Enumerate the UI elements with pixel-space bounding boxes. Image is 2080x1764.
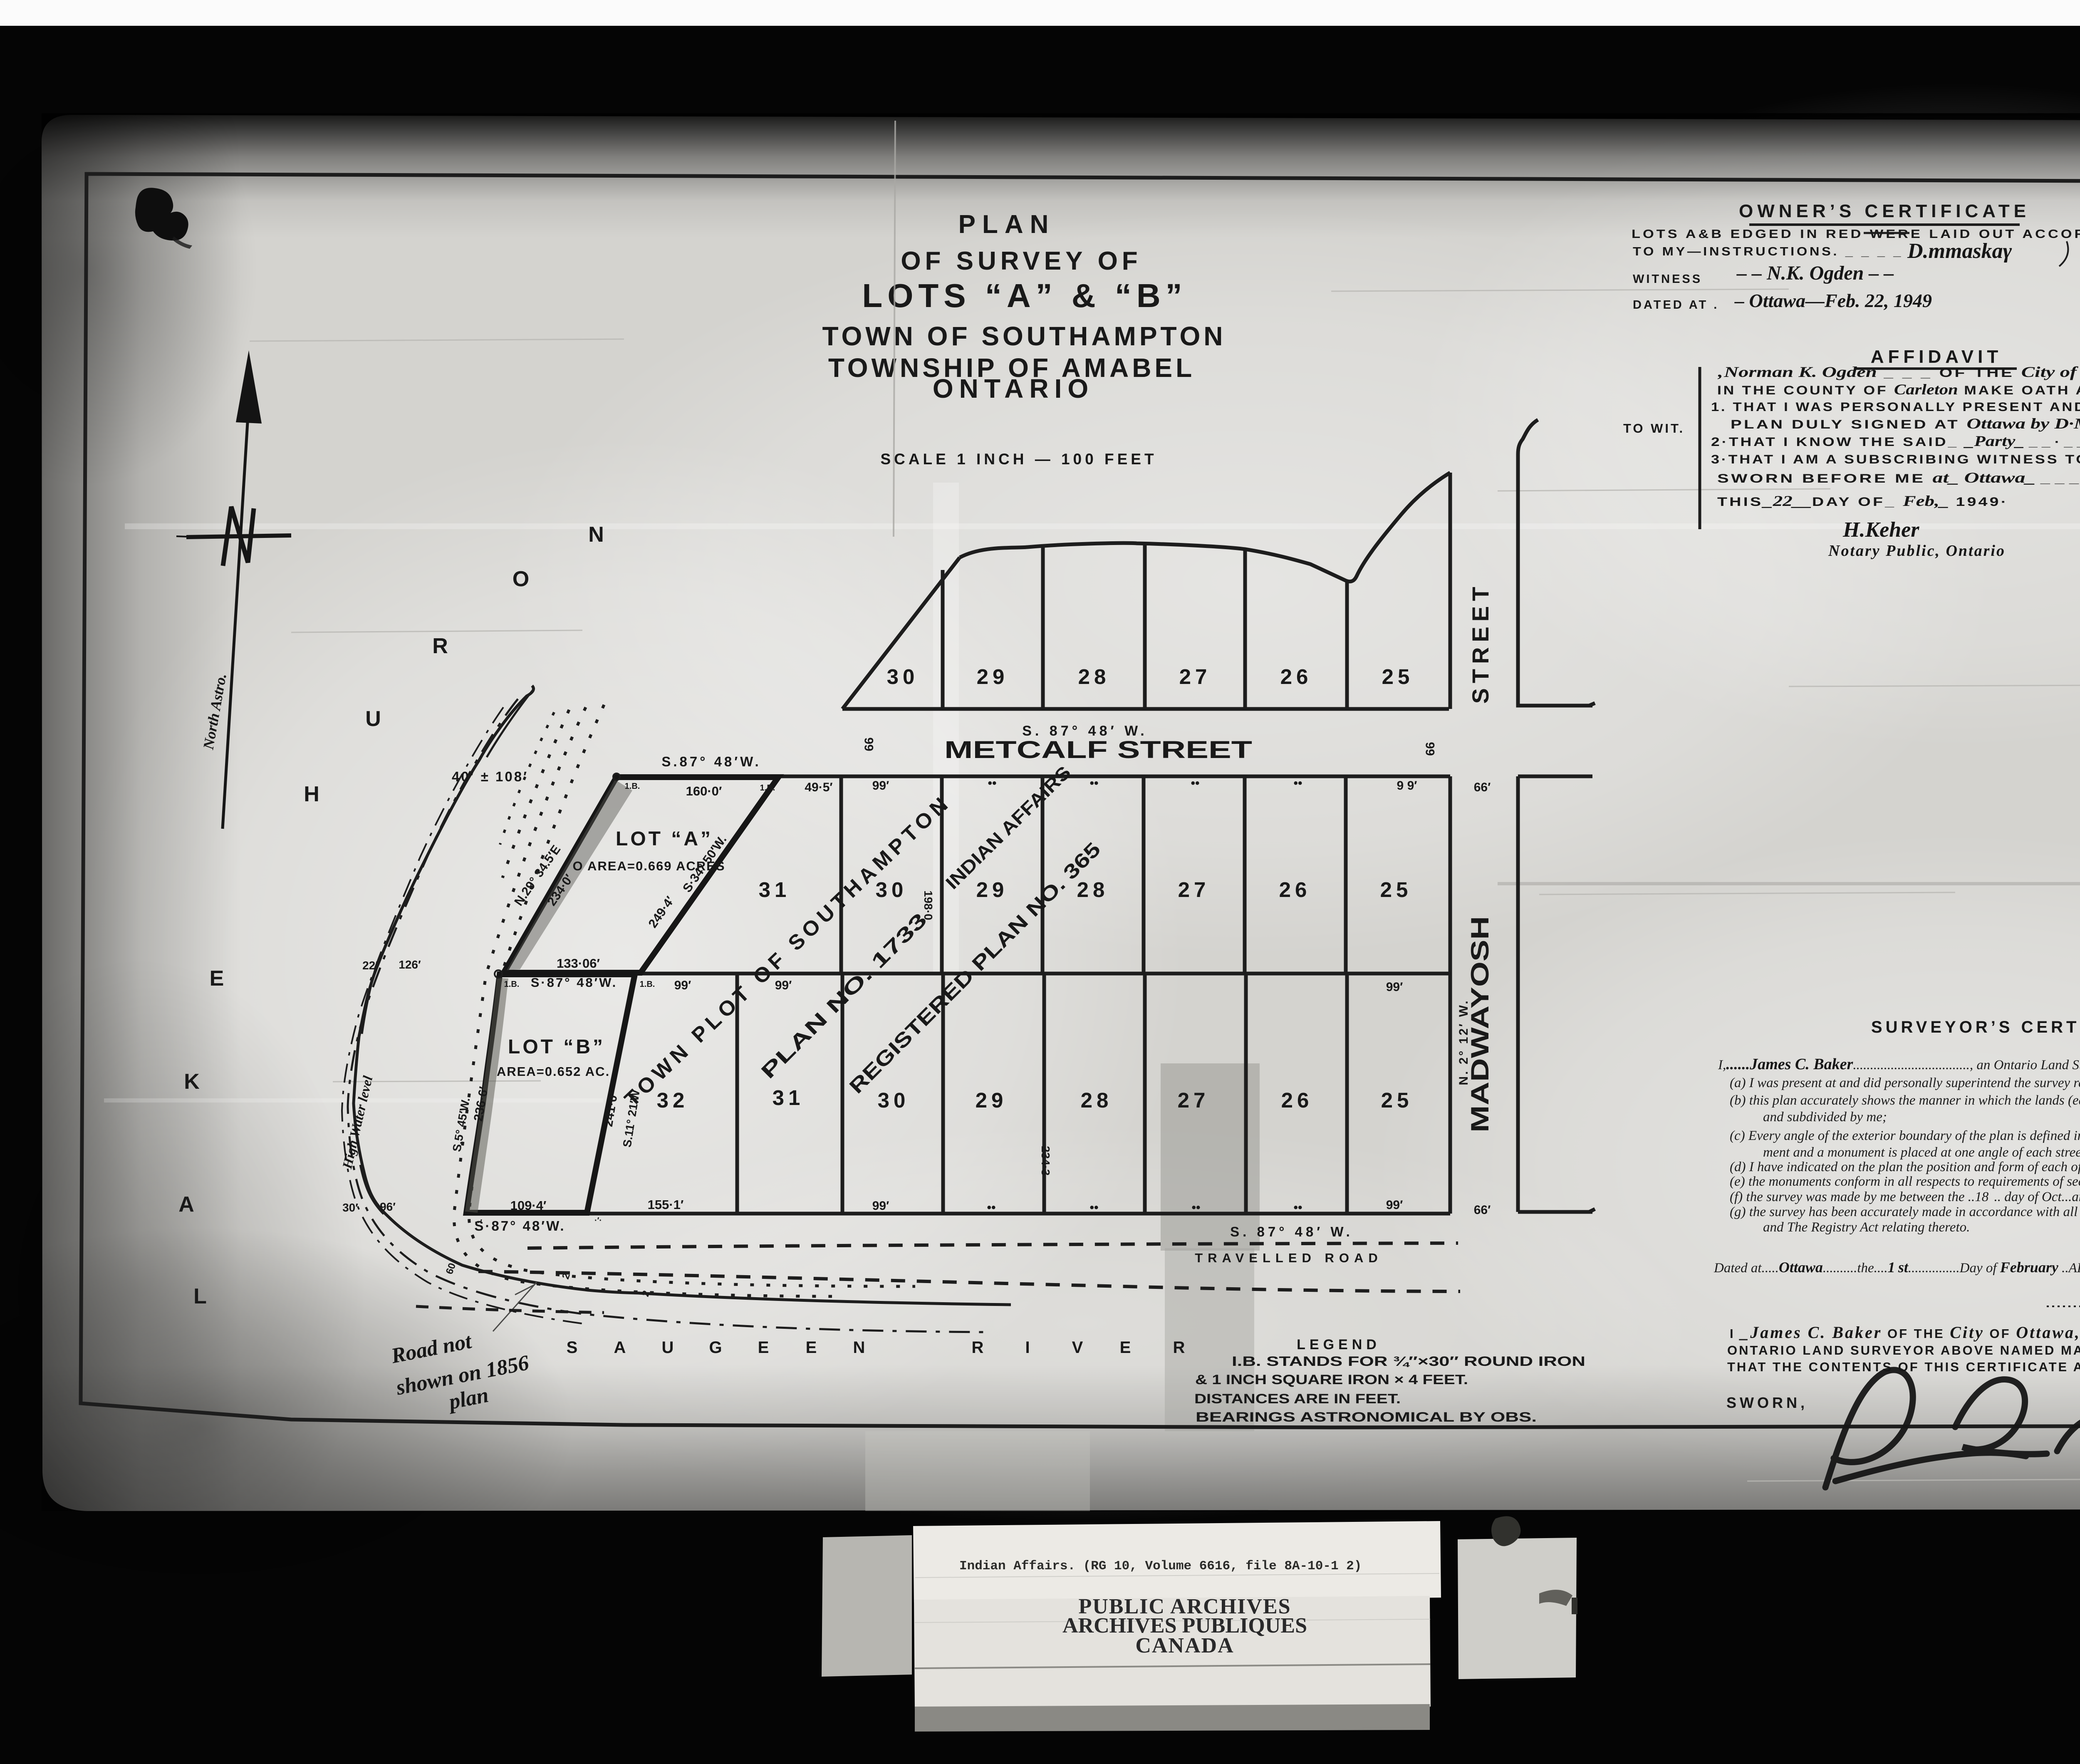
svg-text:27: 27 (1178, 1088, 1210, 1112)
svg-text:Dated at.....Ottawa..........t: Dated at.....Ottawa..........the....1 st… (1714, 1259, 2080, 1276)
svg-text:O: O (513, 567, 529, 591)
svg-text:OWNER’S CERTIFICATE: OWNER’S CERTIFICATE (1739, 201, 2030, 221)
svg-text:26: 26 (1279, 878, 1311, 902)
svg-text:ONTARIO LAND SURVEYOR ABOVE: ONTARIO LAND SURVEYOR ABOVE NAMED MAKE O… (1727, 1343, 2080, 1358)
svg-text:66′: 66′ (1474, 1203, 1491, 1217)
svg-text:99′: 99′ (775, 979, 792, 992)
svg-text:SWORN,: SWORN, (1726, 1394, 1808, 1411)
svg-text:••: •• (1191, 1201, 1200, 1214)
svg-text:198·0: 198·0 (922, 890, 935, 920)
svg-text:(a) I was present at and did: (a) I was present at and did personally … (1730, 1075, 2080, 1090)
svg-text:E: E (210, 966, 224, 991)
svg-text:3·THAT I AM A SUBSCRIBING: 3·THAT I AM A SUBSCRIBING WITNESS TO SAI… (1711, 453, 2080, 466)
svg-text:155·1′: 155·1′ (648, 1197, 684, 1212)
svg-text:I: I (1025, 1338, 1030, 1357)
svg-text:A: A (614, 1338, 626, 1357)
svg-text:LEGEND: LEGEND (1297, 1337, 1381, 1353)
svg-text:– – N.K. Ogden – –: – – N.K. Ogden – – (1736, 262, 1894, 284)
svg-text:PLAN DULY SIGNED AT Ottawa: PLAN DULY SIGNED AT Ottawa by D·M· MacKa… (1731, 415, 2080, 432)
svg-text:TO MY—INSTRUCTIONS. _ _ _ _: TO MY—INSTRUCTIONS. _ _ _ _ (1633, 245, 1903, 258)
svg-text:S. 87° 48′ W.: S. 87° 48′ W. (1230, 1224, 1353, 1239)
svg-text:N: N (588, 523, 604, 547)
svg-text:SWORN BEFORE ME at_ Ottawa_: SWORN BEFORE ME at_ Ottawa_ _ _ _ ___ __… (1717, 469, 2080, 486)
svg-text:••: •• (1090, 776, 1098, 790)
svg-text:DATED AT .: DATED AT . (1633, 298, 1719, 312)
svg-text:SCALE 1 INCH — 100 FEET: SCALE 1 INCH — 100 FEET (880, 451, 1157, 468)
svg-text:29: 29 (977, 665, 1009, 689)
svg-text:IN THE COUNTY OF Carleton: IN THE COUNTY OF Carleton MAKE OATH AND … (1717, 381, 2080, 398)
svg-text:R: R (1173, 1338, 1185, 1357)
svg-text:AFFIDAVIT: AFFIDAVIT (1871, 347, 2003, 367)
svg-text:TO WIT.: TO WIT. (1623, 421, 1685, 436)
svg-text:K: K (184, 1070, 200, 1094)
svg-text:99′: 99′ (872, 779, 889, 793)
svg-text:R: R (972, 1338, 984, 1357)
svg-text:27: 27 (1178, 878, 1210, 902)
svg-text:49·5′: 49·5′ (805, 780, 832, 794)
svg-text:27: 27 (1179, 665, 1211, 689)
svg-text:S·87° 48′W.: S·87° 48′W. (531, 975, 618, 990)
svg-text:I.B. STANDS FOR ¾″×30″ ROUN: I.B. STANDS FOR ¾″×30″ ROUND IRON (1232, 1354, 1585, 1369)
svg-text:234·3: 234·3 (1039, 1146, 1052, 1176)
svg-text:25: 25 (1382, 665, 1414, 689)
svg-text:30: 30 (878, 1088, 910, 1112)
svg-text:and subdivided by me;: and subdivided by me; (1763, 1110, 1887, 1125)
svg-text:160·0′: 160·0′ (686, 784, 722, 798)
svg-text:••: •• (988, 776, 996, 790)
svg-text:TOWN OF SOUTHAMPTON: TOWN OF SOUTHAMPTON (822, 321, 1226, 351)
svg-text:U: U (365, 707, 381, 731)
svg-text:96′: 96′ (380, 1200, 396, 1213)
svg-text:(c) Every angle of the exteri: (c) Every angle of the exterior boundary… (1730, 1128, 2080, 1143)
svg-text:26: 26 (1280, 665, 1312, 689)
svg-text:26: 26 (1281, 1088, 1313, 1112)
svg-text:22′: 22′ (362, 959, 378, 972)
svg-text:S: S (567, 1338, 578, 1357)
svg-text:••: •• (987, 1201, 995, 1214)
svg-text:N: N (853, 1338, 865, 1357)
svg-text:V: V (1072, 1338, 1083, 1357)
svg-text:DISTANCES ARE IN FEET.: DISTANCES ARE IN FEET. (1194, 1391, 1401, 1406)
svg-text:THIS_22__DAY OF_ Feb,_ 1949·: THIS_22__DAY OF_ Feb,_ 1949· (1717, 493, 2008, 509)
svg-text:28: 28 (1081, 1088, 1113, 1112)
svg-text:Notary Public, Ontario: Notary Public, Ontario (1828, 542, 2006, 560)
svg-text:30′: 30′ (342, 1201, 358, 1214)
svg-text:Indian Affairs. (RG 10, Volume: Indian Affairs. (RG 10, Volume 6616, fil… (959, 1559, 1362, 1573)
svg-text:G: G (709, 1338, 722, 1357)
svg-text:25: 25 (1381, 1088, 1413, 1112)
svg-text:BEARINGS ASTRONOMICAL BY: BEARINGS ASTRONOMICAL BY OBS. (1196, 1410, 1537, 1425)
svg-text:30: 30 (887, 665, 919, 689)
svg-text:(g) the survey has been accur: (g) the survey has been accurately made … (1730, 1204, 2080, 1219)
svg-text:A: A (178, 1192, 194, 1216)
svg-text:28: 28 (1078, 665, 1110, 689)
svg-text:STREET: STREET (1467, 582, 1493, 704)
svg-text:WITNESS: WITNESS (1633, 273, 1702, 286)
svg-text:R: R (432, 634, 448, 658)
svg-text:and The Registry Act relating: and The Registry Act relating thereto. (1763, 1220, 1970, 1235)
svg-text:99′: 99′ (674, 979, 691, 992)
svg-text:31: 31 (773, 1086, 805, 1110)
svg-text:1.B.: 1.B. (504, 980, 520, 989)
svg-text:66′: 66′ (1474, 780, 1491, 794)
svg-text:109·4′: 109·4′ (510, 1198, 547, 1213)
svg-text:25: 25 (1380, 878, 1412, 902)
svg-text:(b) this plan accurately show: (b) this plan accurately shows the manne… (1730, 1093, 2080, 1108)
svg-text:METCALF STREET: METCALF STREET (944, 736, 1252, 763)
svg-text:S·87° 48′W.: S·87° 48′W. (474, 1218, 565, 1234)
svg-text:ment and a monument is placed: ment and a monument is placed at one ang… (1763, 1145, 2080, 1160)
svg-text:L: L (193, 1284, 207, 1308)
svg-text:99′: 99′ (1386, 1198, 1403, 1212)
svg-text:N. 2° 12′ W.: N. 2° 12′ W. (1457, 999, 1471, 1085)
svg-text:E: E (758, 1338, 769, 1357)
svg-text:ONTARIO: ONTARIO (933, 374, 1094, 404)
svg-text:1. THAT I WAS PERSONALLY P: 1. THAT I WAS PERSONALLY PRESENT AND DID… (1711, 400, 2080, 414)
svg-text:(f) the survey was made by me: (f) the survey was made by me between th… (1730, 1189, 2080, 1204)
svg-text:LOTS “A” & “B”: LOTS “A” & “B” (862, 277, 1187, 314)
svg-text:••: •• (1191, 776, 1199, 790)
svg-text:CANADA: CANADA (1135, 1634, 1234, 1657)
svg-text:••: •• (1293, 776, 1302, 790)
svg-text:66: 66 (862, 737, 876, 751)
svg-text:••: •• (1090, 1201, 1098, 1214)
svg-text:133·06′: 133·06′ (557, 956, 600, 971)
svg-text:S.87° 48′W.: S.87° 48′W. (661, 754, 761, 769)
svg-text:(d) I have indicated on the p: (d) I have indicated on the plan the pos… (1730, 1159, 2080, 1174)
svg-text:& 1 INCH SQUARE IRON × 4 F: & 1 INCH SQUARE IRON × 4 FEET. (1195, 1372, 1468, 1387)
svg-text:H: H (304, 782, 319, 806)
svg-text:– Ottawa—Feb. 22, 1949: – Ottawa—Feb. 22, 1949 (1734, 290, 1932, 311)
svg-text:‚Norman K. Ogden _ _ _ OF THE: ‚Norman K. Ogden _ _ _ OF THE City of Ot… (1717, 364, 2080, 380)
svg-text:40′ ± 108′: 40′ ± 108′ (452, 769, 528, 784)
svg-text:U: U (662, 1338, 674, 1357)
svg-text:E: E (1120, 1338, 1131, 1357)
svg-text:D.mmaskaγ: D.mmaskaγ (1907, 239, 2012, 263)
svg-text:32: 32 (657, 1088, 689, 1112)
svg-text:1.B.: 1.B. (640, 980, 655, 989)
svg-text:99′: 99′ (1386, 980, 1403, 994)
svg-text:1.B.: 1.B. (625, 782, 640, 791)
svg-text:9 9′: 9 9′ (1397, 779, 1417, 793)
svg-text:SURVEYOR’S CERTIFICATE: SURVEYOR’S CERTIFICATE (1871, 1018, 2080, 1036)
svg-text:1.B.: 1.B. (760, 783, 775, 793)
svg-text:2·THAT I KNOW THE SAID_ _P: 2·THAT I KNOW THE SAID_ _Party_ _ _ · _ … (1711, 433, 2080, 449)
svg-text:LOTS A&B EDGED IN RED WERE LA: LOTS A&B EDGED IN RED WERE LAID OUT ACCO… (1632, 228, 2080, 241)
svg-text:PLAN: PLAN (958, 210, 1055, 239)
svg-text:TRAVELLED ROAD: TRAVELLED ROAD (1195, 1251, 1383, 1265)
svg-text:29: 29 (976, 1088, 1008, 1112)
svg-text:LOT “B”: LOT “B” (508, 1036, 605, 1058)
svg-text:H.Keher: H.Keher (1842, 518, 1919, 542)
svg-text:·′·: ·′· (594, 1216, 602, 1225)
svg-text:126′: 126′ (399, 958, 421, 971)
svg-text:AREA=0.652 AC.: AREA=0.652 AC. (497, 1064, 610, 1079)
svg-text:••: •• (1293, 1201, 1302, 1214)
svg-text:30: 30 (876, 878, 908, 902)
svg-text:29: 29 (976, 878, 1008, 902)
svg-text:28: 28 (1077, 878, 1109, 902)
svg-text:(e) the monuments conform in: (e) the monuments conform in all respect… (1730, 1174, 2080, 1189)
svg-text:E: E (806, 1338, 817, 1357)
svg-text:99′: 99′ (872, 1199, 889, 1213)
svg-text:OF SURVEY OF: OF SURVEY OF (901, 247, 1142, 275)
svg-text:LOT “A”: LOT “A” (616, 828, 713, 850)
svg-text:31: 31 (759, 878, 791, 902)
svg-text:I,......James C. Baker.......: I,......James C. Baker..................… (1718, 1055, 2080, 1073)
svg-text:··′: ··′ (475, 1218, 482, 1227)
svg-text:66: 66 (1424, 742, 1437, 756)
